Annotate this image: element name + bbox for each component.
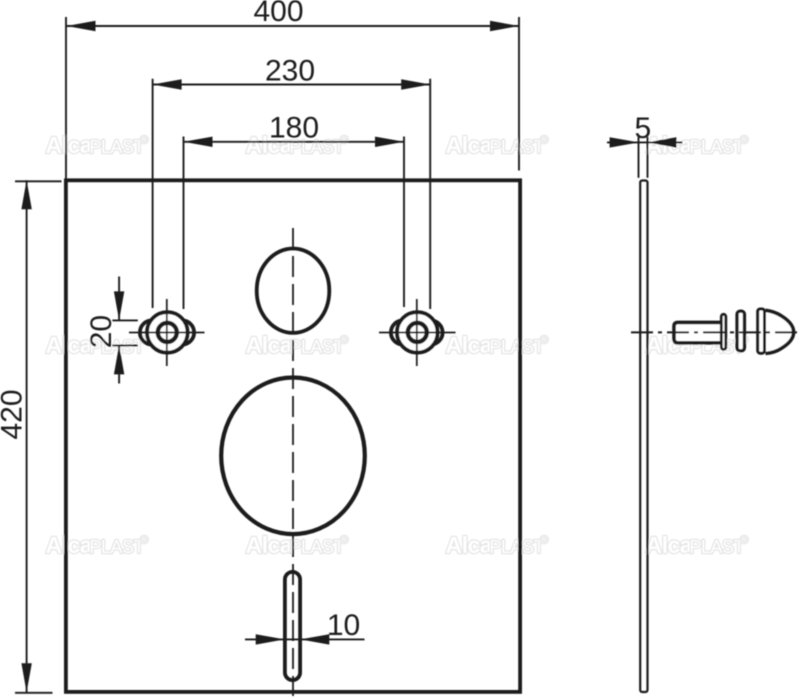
svg-text:PLAST: PLAST bbox=[290, 337, 345, 357]
svg-text:PLAST: PLAST bbox=[490, 337, 545, 357]
svg-text:®: ® bbox=[741, 135, 749, 146]
svg-text:Alca: Alca bbox=[246, 532, 293, 558]
svg-text:Alca: Alca bbox=[446, 132, 493, 158]
svg-text:Alca: Alca bbox=[646, 532, 693, 558]
svg-text:®: ® bbox=[541, 335, 549, 346]
svg-text:10: 10 bbox=[327, 609, 360, 642]
svg-text:PLAST: PLAST bbox=[490, 537, 545, 557]
svg-text:20: 20 bbox=[85, 315, 118, 348]
svg-text:Alca: Alca bbox=[246, 332, 293, 358]
svg-text:PLAST: PLAST bbox=[90, 537, 145, 557]
svg-text:®: ® bbox=[341, 135, 349, 146]
svg-text:®: ® bbox=[541, 135, 549, 146]
svg-text:Alca: Alca bbox=[46, 132, 93, 158]
svg-text:5: 5 bbox=[634, 112, 651, 145]
svg-text:230: 230 bbox=[265, 55, 315, 88]
svg-text:Alca: Alca bbox=[446, 532, 493, 558]
svg-text:Alca: Alca bbox=[446, 332, 493, 358]
svg-text:Alca: Alca bbox=[46, 532, 93, 558]
svg-text:®: ® bbox=[541, 535, 549, 546]
svg-text:180: 180 bbox=[269, 112, 319, 145]
svg-text:PLAST: PLAST bbox=[90, 137, 145, 157]
svg-text:PLAST: PLAST bbox=[290, 537, 345, 557]
svg-text:PLAST: PLAST bbox=[490, 137, 545, 157]
svg-text:®: ® bbox=[141, 535, 149, 546]
svg-text:®: ® bbox=[141, 135, 149, 146]
svg-text:®: ® bbox=[341, 335, 349, 346]
svg-text:PLAST: PLAST bbox=[690, 537, 745, 557]
svg-text:PLAST: PLAST bbox=[690, 137, 745, 157]
svg-text:®: ® bbox=[741, 535, 749, 546]
svg-text:®: ® bbox=[341, 535, 349, 546]
svg-text:400: 400 bbox=[253, 0, 303, 28]
svg-text:420: 420 bbox=[0, 389, 29, 439]
